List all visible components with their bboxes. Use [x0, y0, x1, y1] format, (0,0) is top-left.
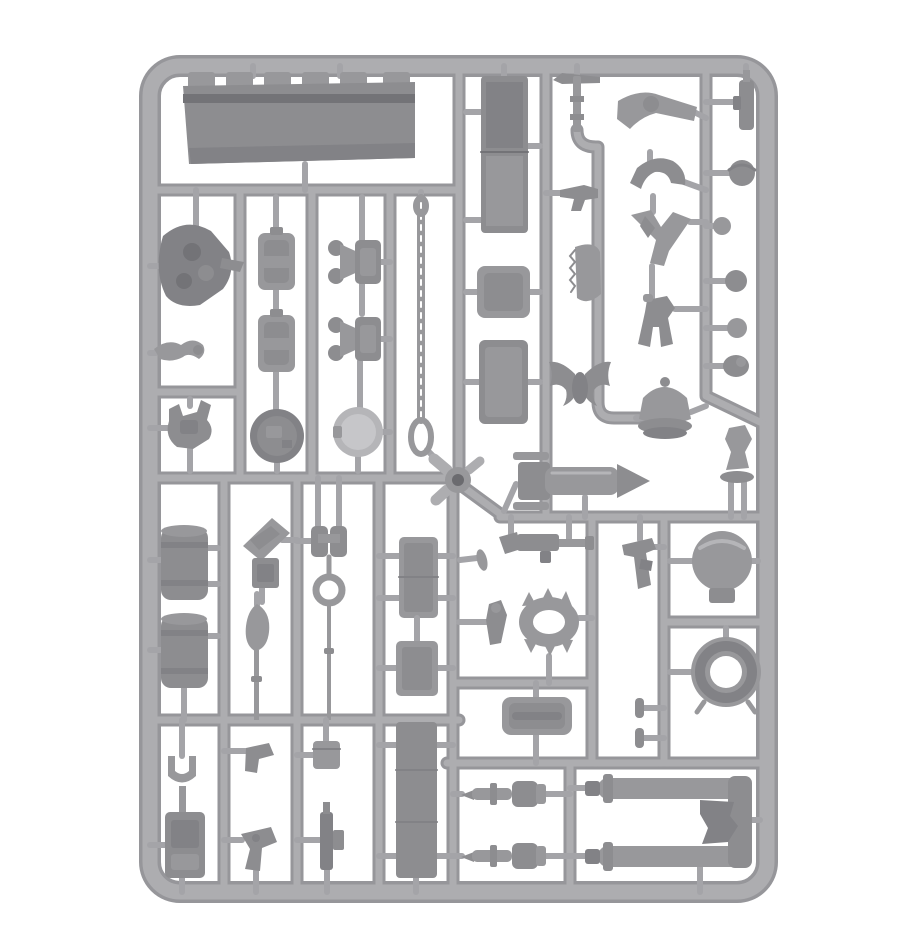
sprue-photo [0, 0, 918, 948]
sprue-image [0, 0, 918, 948]
gate [460, 558, 477, 560]
part-crate-top [466, 266, 540, 318]
